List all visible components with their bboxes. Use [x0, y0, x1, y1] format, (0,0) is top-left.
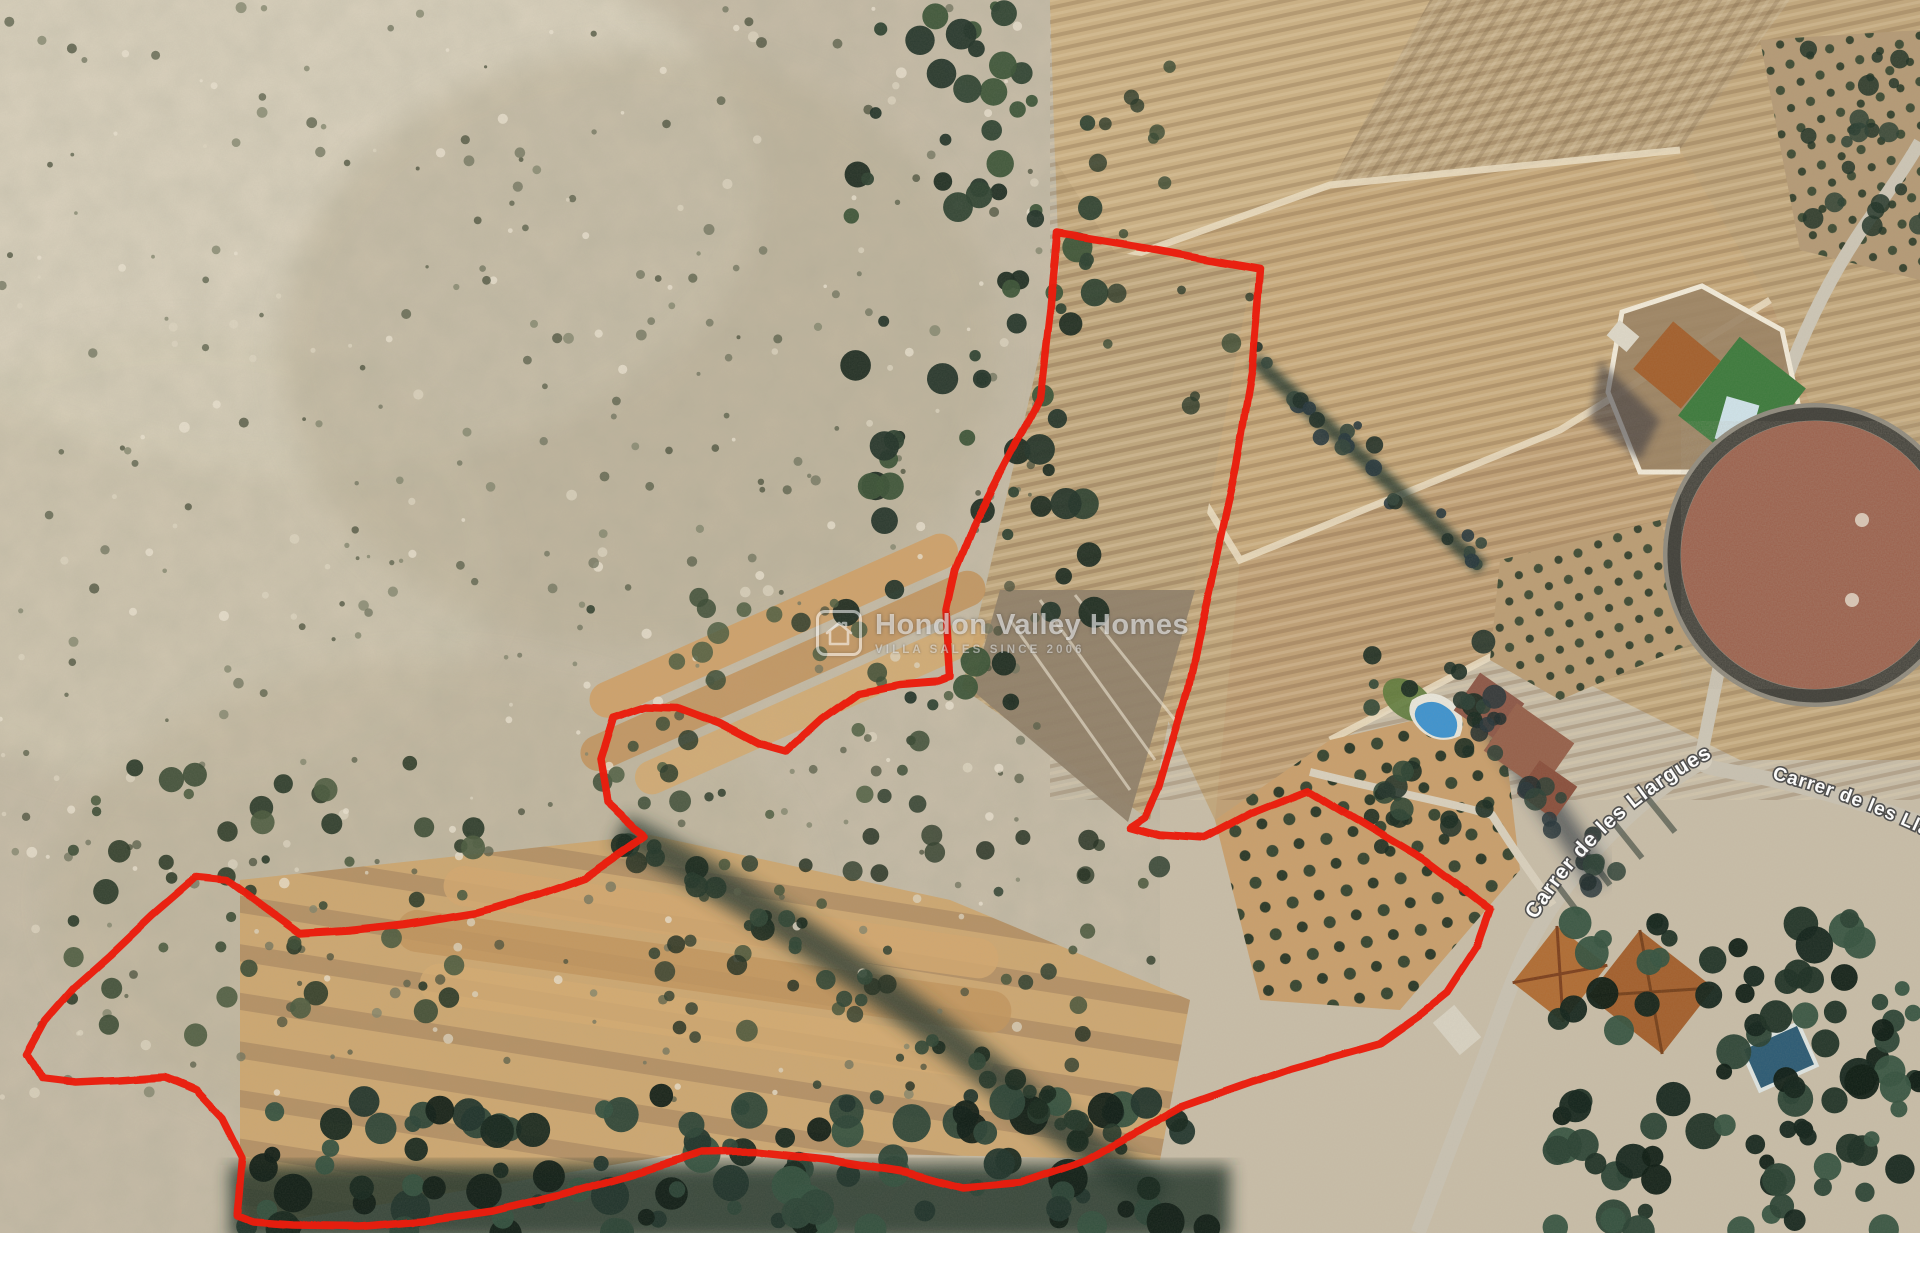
satellite-map-image: Carrer de les Llargues Carrer de les Lla…: [0, 0, 1920, 1233]
photo-grain: [0, 0, 1920, 1233]
bottom-white-strip: [0, 1233, 1920, 1280]
screenshot-stage: Carrer de les Llargues Carrer de les Lla…: [0, 0, 1920, 1280]
map-canvas: Carrer de les Llargues Carrer de les Lla…: [0, 0, 1920, 1233]
